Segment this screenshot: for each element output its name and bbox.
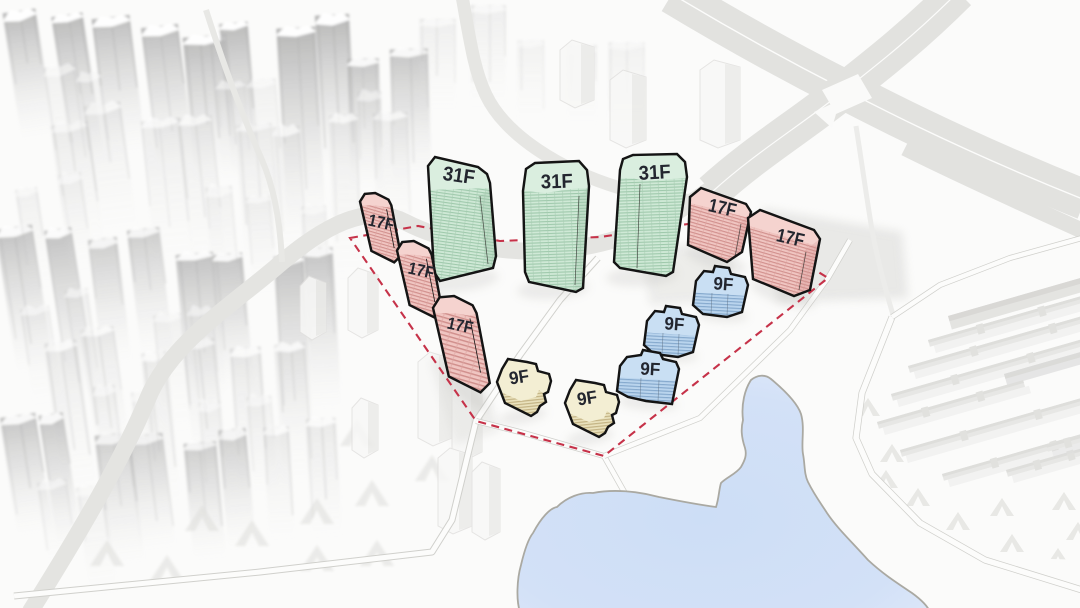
svg-text:31F: 31F (441, 163, 476, 189)
svg-text:31F: 31F (540, 170, 573, 193)
svg-text:9F: 9F (664, 313, 685, 334)
svg-text:31F: 31F (638, 161, 671, 185)
svg-text:9F: 9F (640, 358, 661, 379)
svg-text:9F: 9F (576, 387, 599, 410)
svg-text:9F: 9F (508, 366, 531, 389)
svg-text:9F: 9F (713, 273, 734, 294)
